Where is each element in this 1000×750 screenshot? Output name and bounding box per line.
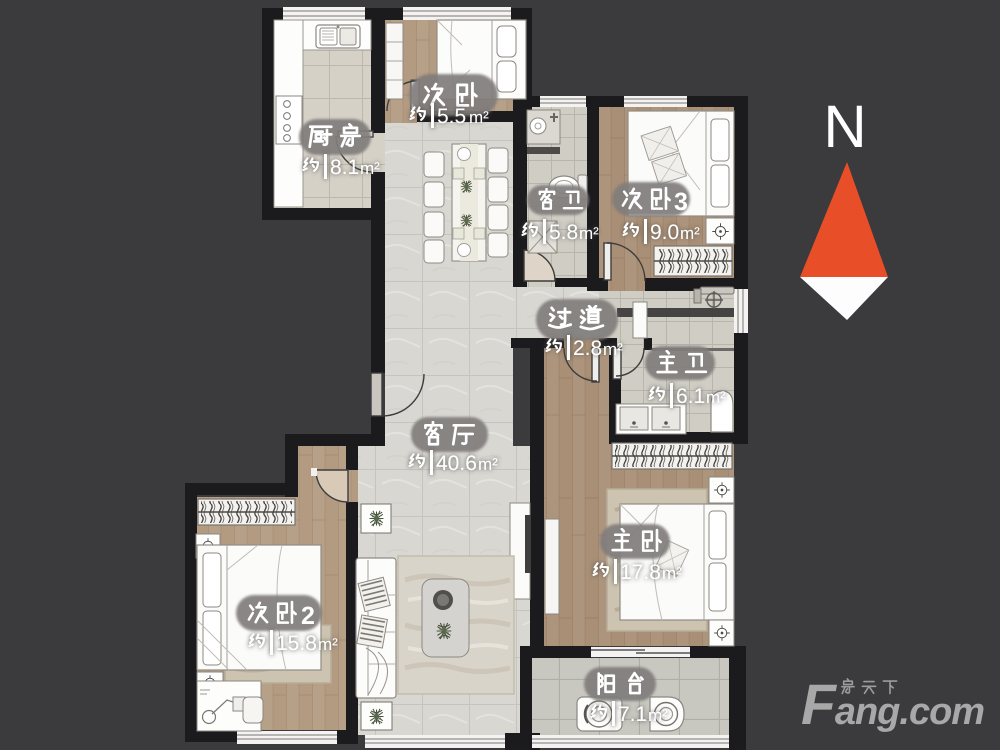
svg-text:2: 2 [301,602,315,630]
svg-text:m²: m² [603,340,623,359]
svg-text:m²: m² [706,388,726,407]
svg-text:5.5: 5.5 [437,105,466,128]
svg-text:m²: m² [360,159,380,178]
svg-text:m²: m² [579,224,599,243]
svg-text:9.0: 9.0 [650,221,679,244]
svg-text:m²: m² [648,706,668,725]
svg-text:15.8: 15.8 [276,632,317,655]
svg-text:3: 3 [674,188,688,216]
svg-text:m²: m² [318,635,338,654]
svg-text:m²: m² [662,564,682,583]
svg-text:m²: m² [469,108,489,127]
svg-text:2.8: 2.8 [573,337,602,360]
svg-text:m²: m² [478,455,498,474]
svg-text:m²: m² [680,224,700,243]
svg-text:40.6: 40.6 [436,452,477,475]
svg-text:7.1: 7.1 [618,703,647,726]
svg-text:6.1: 6.1 [676,385,705,408]
svg-text:17.8: 17.8 [620,561,661,584]
svg-text:5.8: 5.8 [549,221,578,244]
svg-text:8.1: 8.1 [330,156,359,179]
svg-text:N: N [823,93,866,160]
